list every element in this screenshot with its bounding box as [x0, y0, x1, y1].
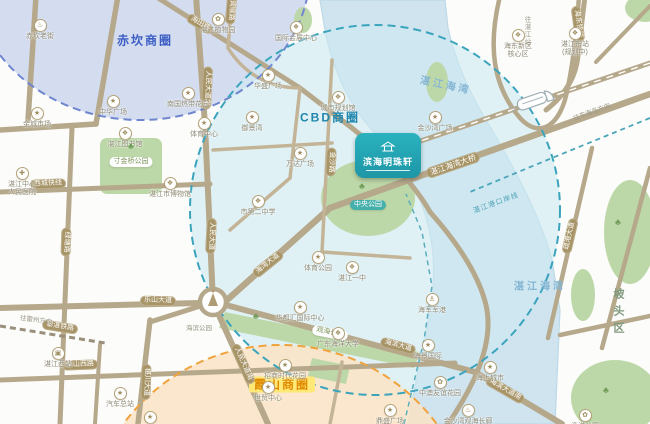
poi-marker: ★海上城市	[455, 356, 525, 383]
poi-marker: ★汽车总站	[85, 382, 155, 409]
poi-icon: ★	[262, 69, 275, 82]
poi-marker: ✚湛江中心 人民医院	[0, 162, 57, 197]
poi-icon: ★	[114, 387, 127, 400]
poi-icon: ✚	[16, 167, 29, 180]
poi-marker: ★万达广场	[265, 142, 335, 169]
poi-icon: ✿	[579, 409, 592, 422]
poi-label: 金沙湾观海长廊	[433, 418, 503, 424]
poi-icon: ★	[429, 111, 442, 124]
poi-icon: ★	[384, 404, 397, 417]
poi-marker: ★金城市场	[2, 102, 72, 129]
tree-icon: ♣	[128, 141, 134, 151]
map-labels-layer: 滨海明珠轩 坡头区 赤坎商圈CBD商圈霞山商圈湛江海湾湛江海湾湛江港口岸线人民大…	[0, 0, 650, 424]
project-name: 滨海明珠轩	[363, 155, 413, 168]
poi-marker: ⚓海军军港	[397, 288, 467, 315]
poi-marker: ❖国际会展中心	[261, 16, 331, 43]
poi-label: 城市规划馆	[303, 105, 373, 113]
poi-icon: ★	[262, 381, 275, 394]
tree-icon: ♣	[603, 385, 609, 395]
poi-marker: ★世贸中心	[233, 376, 303, 403]
poi-label: 金城市场	[2, 121, 72, 129]
road-label: 海湾大道	[251, 249, 285, 279]
poi-marker: ♨赤坎老街	[5, 14, 75, 41]
poi-icon: ⚓	[426, 293, 439, 306]
poi-icon: ★	[422, 339, 435, 352]
tree-icon: ♣	[359, 181, 365, 191]
direction-note: 往雷州方向	[19, 312, 53, 326]
water-label: 湛江港口岸线	[472, 190, 521, 216]
poi-icon: ✿	[212, 13, 225, 26]
poi-marker: ★华盛广场	[233, 64, 303, 91]
poi-icon: ❖	[252, 195, 265, 208]
poi-icon: ❖	[332, 91, 345, 104]
poi-label: 市第二中学	[223, 209, 293, 217]
poi-label: 中华广场	[78, 109, 148, 117]
poi-icon: ★	[279, 359, 292, 372]
poi-label: 中澳友谊花园	[405, 390, 475, 398]
poi-icon: ★	[107, 95, 120, 108]
poi-label: 赤坎老街	[5, 33, 75, 41]
poi-marker: ❖湛江一中	[317, 256, 387, 283]
poi-icon: ❖	[332, 327, 345, 340]
direction-note: 往湛江站	[521, 16, 531, 46]
poi-label: 湛江植物园	[183, 27, 253, 35]
poi-icon: ♨	[462, 404, 475, 417]
poi-icon: ★	[484, 361, 497, 374]
poi-label: 世贸中心	[233, 395, 303, 403]
direction-note: 往东海岛方向	[571, 100, 611, 123]
poi-marker: ★南国热带花园	[153, 82, 223, 109]
poi-marker: ♨金沙湾观海长廊	[433, 399, 503, 424]
poi-marker: ❖海东新区 核心区	[483, 24, 553, 59]
poi-label: 御景湾	[217, 125, 287, 133]
poi-label: 鼎盛广场	[355, 418, 425, 424]
poi-label: 海景国际	[393, 353, 463, 361]
badge-divider	[366, 170, 410, 171]
park-label: 寸金桥公园	[110, 157, 153, 167]
poi-label: 海上城市	[455, 375, 525, 383]
poi-icon: ★	[144, 411, 157, 424]
poi-label: 华盛广场	[233, 83, 303, 91]
poi-icon: ❖	[164, 177, 177, 190]
poi-marker: ★金沙湾广场	[400, 106, 470, 133]
tree-icon: ♣	[253, 311, 259, 321]
poi-label: 湛江一中	[317, 275, 387, 283]
poi-marker: ❖市第二中学	[223, 190, 293, 217]
tree-icon: ♣	[615, 217, 621, 227]
pavilion-icon	[379, 141, 397, 153]
road-label: 疏港大道	[561, 217, 579, 254]
road-label: 湛江海湾大桥	[425, 151, 482, 180]
water-label: 湛江海湾	[419, 71, 473, 96]
poi-label: 广东海洋大学	[303, 341, 373, 349]
poi-marker: ❖广东海洋大学	[303, 322, 373, 349]
district-label-text: 赤坎商圈	[117, 34, 173, 48]
poi-marker: ★海景国际	[393, 334, 463, 361]
poi-marker: ★御景湾	[217, 106, 287, 133]
poi-label: 国际会展中心	[261, 35, 331, 43]
poi-icon: ✿	[434, 376, 447, 389]
poi-marker: ★华都汇国际中心	[265, 296, 335, 323]
poi-icon: ❖	[290, 21, 303, 34]
poi-label: 南国热带花园	[153, 101, 223, 109]
direction-note: 海滨公园	[186, 322, 212, 332]
poi-icon: ❖	[119, 127, 132, 140]
poi-icon: ★	[182, 87, 195, 100]
poi-label: 汽车总站	[85, 401, 155, 409]
poi-label: 湛江市博物馆	[135, 191, 205, 199]
poi-label: 湛江中心 人民医院	[0, 181, 57, 197]
poi-label: 湛江图书馆	[90, 141, 160, 149]
poi-marker: ★中华广场	[78, 90, 148, 117]
poi-marker: ❖湛江市博物馆	[135, 172, 205, 199]
water-label: 湛江海湾	[514, 278, 566, 293]
project-badge: 滨海明珠轩	[355, 133, 421, 178]
poi-icon: ★	[246, 111, 259, 124]
poi-label: 金沙湾广场	[400, 125, 470, 133]
poi-icon: ★	[31, 107, 44, 120]
district-label: 赤坎商圈	[117, 32, 173, 49]
road-label: 乐山大道	[140, 296, 176, 307]
poi-icon: ★	[294, 301, 307, 314]
poi-icon: ★	[198, 117, 211, 130]
poi-icon: ♨	[34, 19, 47, 32]
poi-icon: ❖	[346, 261, 359, 274]
poi-marker: ❖湛江图书馆	[90, 122, 160, 149]
poi-marker: ▣湛江西站	[23, 342, 93, 369]
poi-marker: ✿渔港公园	[550, 404, 620, 424]
poi-label: 万达广场	[265, 161, 335, 169]
poi-marker: ❖城市规划馆	[303, 86, 373, 113]
park-label: 中央公园	[350, 200, 386, 210]
poi-icon: ❖	[569, 27, 582, 40]
road-label: 绿塘路	[60, 227, 71, 256]
city-map: 滨海明珠轩 坡头区 赤坎商圈CBD商圈霞山商圈湛江海湾湛江海湾湛江港口岸线人民大…	[0, 0, 650, 424]
poi-label: 海东新区 核心区	[483, 43, 553, 59]
road-label: 人民大道	[205, 218, 217, 254]
poi-label: 海军军港	[397, 307, 467, 315]
poi-icon: ▣	[52, 347, 65, 360]
region-label-potou: 坡头区	[610, 288, 626, 339]
poi-icon: ★	[294, 147, 307, 160]
poi-label: 湛江西站	[23, 361, 93, 369]
poi-marker: ✿湛江植物园	[183, 8, 253, 35]
poi-marker: ★鼎盛广场	[355, 399, 425, 424]
